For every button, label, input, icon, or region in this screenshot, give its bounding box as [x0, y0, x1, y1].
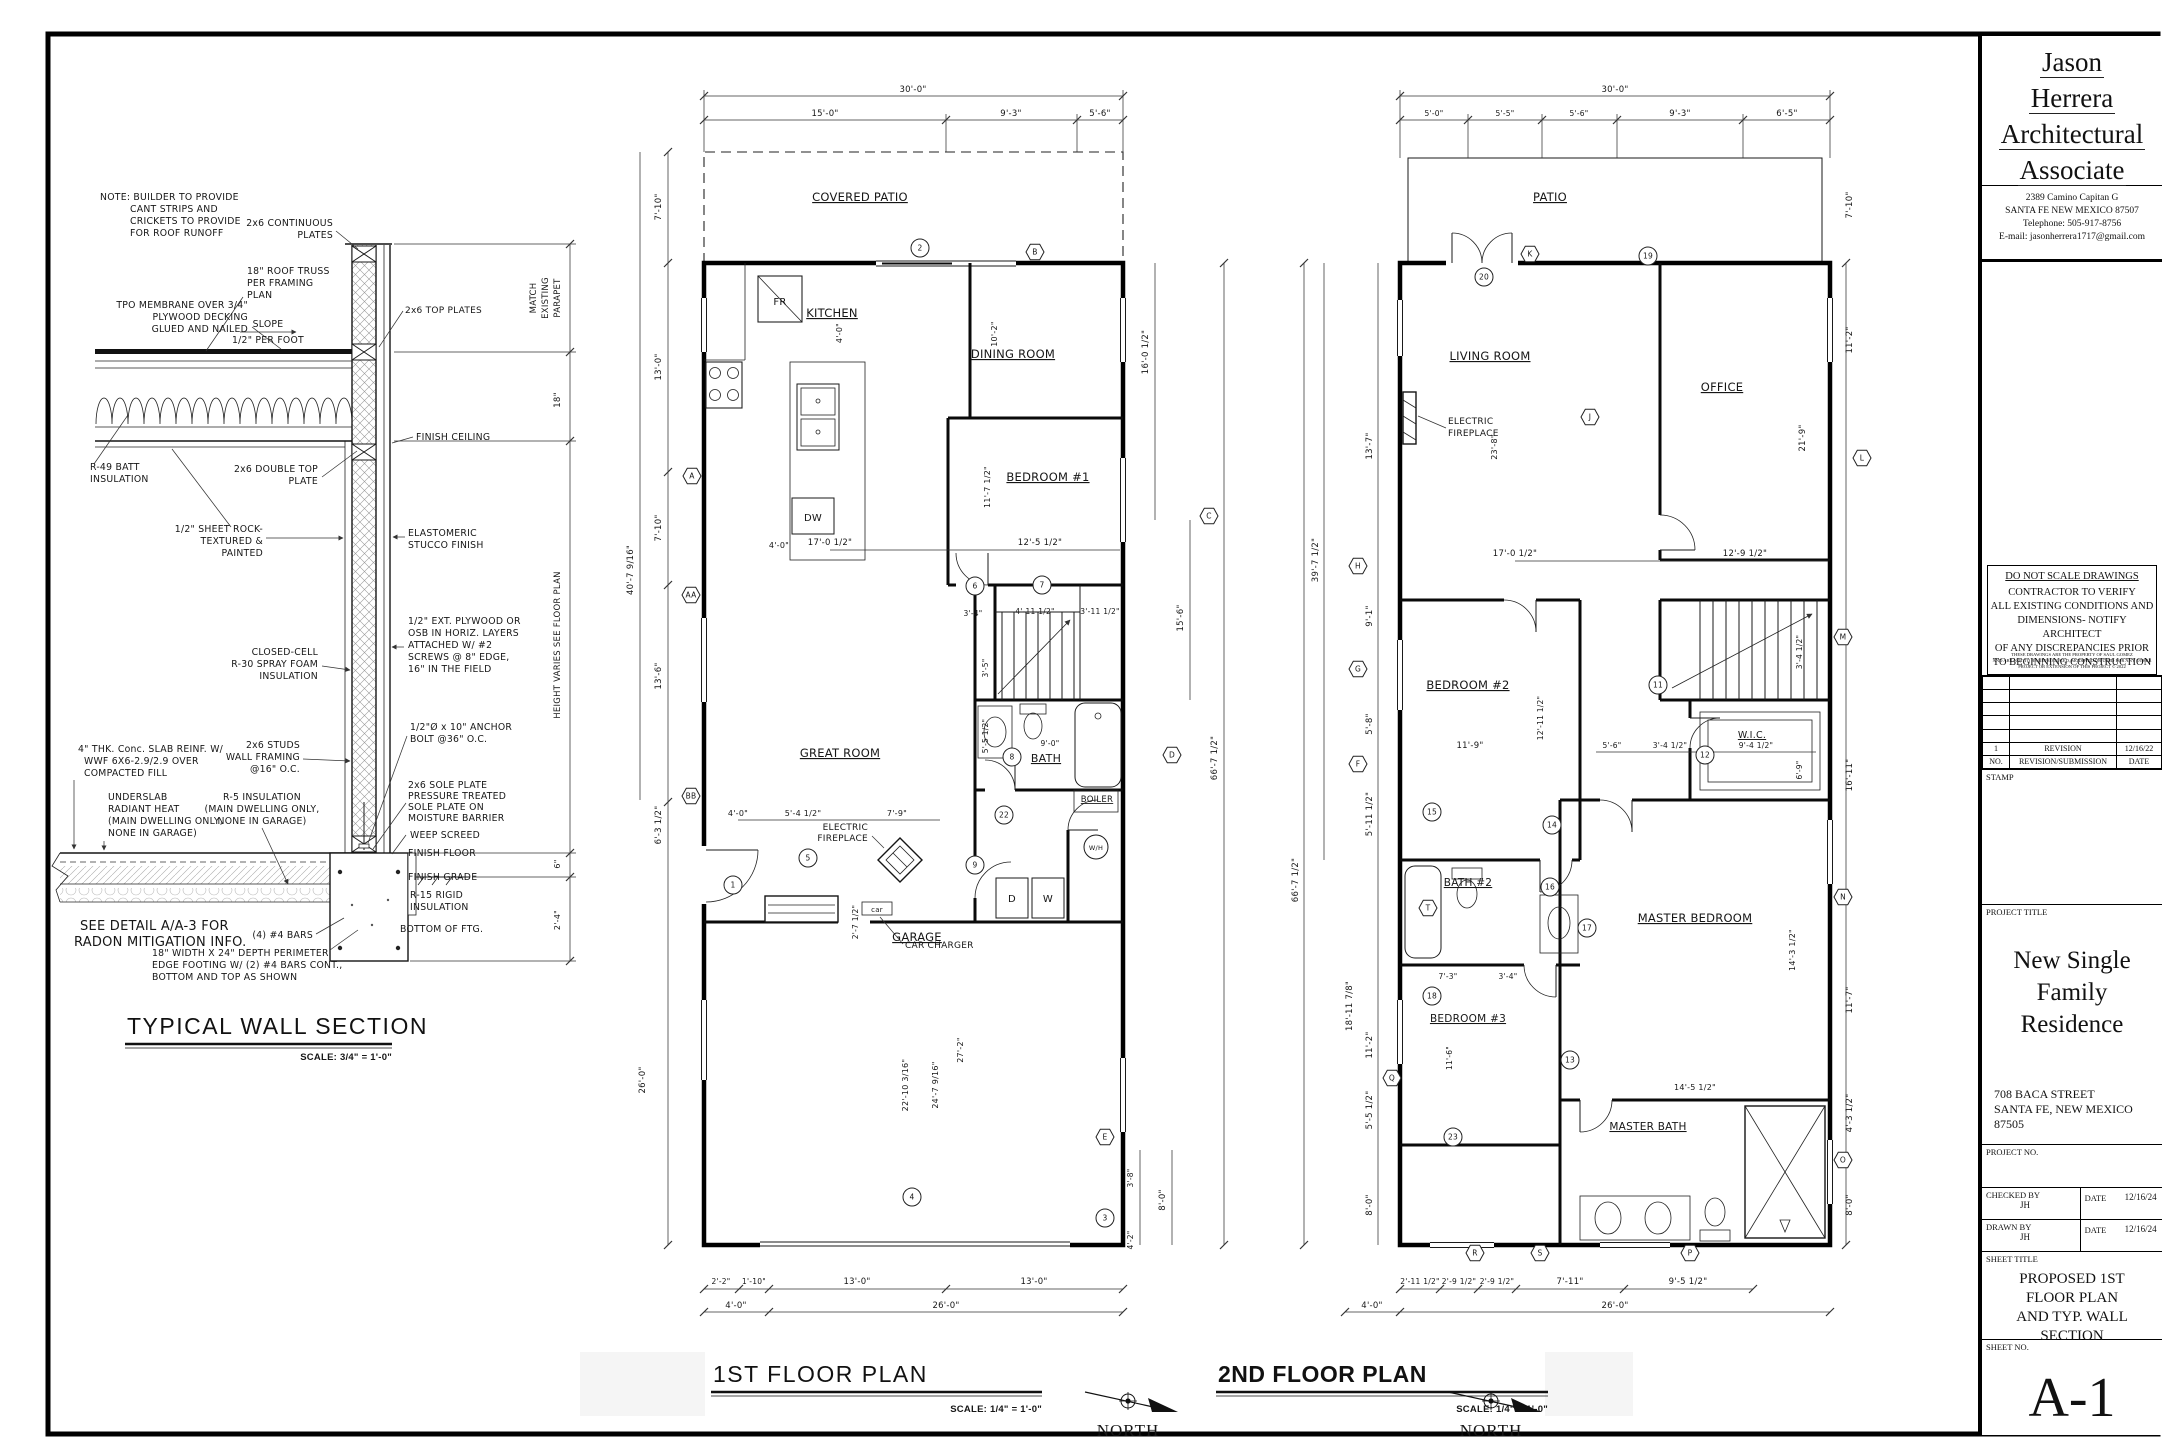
room-label-bath: BATH [1031, 752, 1061, 765]
dim-label: 3'-4" [963, 609, 982, 618]
dim-label: 4'-0" [835, 323, 844, 343]
svg-text:C: C [1206, 512, 1212, 521]
dim-label: 14'-3 1/2" [1788, 929, 1797, 971]
second-floor-plan: PATIOLIVING ROOMOFFICEBEDROOM #2W.I.C.BA… [1216, 85, 1871, 1440]
fixture-label-washer: W [1043, 894, 1053, 905]
plan-marker-7: 7 [1033, 576, 1051, 594]
dim-label: 9'-0" [1040, 739, 1059, 748]
dim-label: PLYWOOD DECKING [153, 312, 248, 323]
plan-marker-9: 9 [966, 856, 984, 874]
dim-label: 5'-8" [1365, 713, 1375, 734]
dim-label: 26'-0" [638, 1066, 648, 1093]
plan-marker-12: 12 [1696, 746, 1714, 764]
plan-marker-C: C [1200, 508, 1218, 524]
dim-label: 30'-0" [899, 85, 926, 95]
dim-label: 16'-11" [1845, 759, 1855, 792]
dim-label: 21'-9" [1798, 424, 1808, 451]
dim-label: 16" IN THE FIELD [408, 664, 492, 675]
wall-section-drawing: NOTE: BUILDER TO PROVIDECANT STRIPS ANDC… [52, 192, 576, 1063]
dim-label: 4'-0" [725, 1301, 746, 1311]
plan-marker-23: 23 [1444, 1128, 1462, 1146]
plan-marker-BB: BB [682, 788, 700, 804]
first-floor-scale: SCALE: 1/4" = 1'-0" [950, 1404, 1042, 1415]
dim-label: 22'-10 3/16" [901, 1059, 910, 1112]
fixture-label-fridge: FR [773, 297, 786, 308]
dim-label: TEXTURED & [200, 536, 263, 547]
dim-label: (MAIN DWELLING ONLY, [108, 816, 223, 827]
dim-label: 1/2" EXT. PLYWOOD OR [408, 616, 521, 627]
checked-by-label: CHECKED BY [1982, 1188, 2080, 1200]
dim-label: 5'-11 1/2" [1365, 792, 1375, 836]
plan-marker-H: H [1349, 558, 1367, 574]
dim-label: 18" WIDTH X 24" DEPTH PERIMETER [152, 948, 329, 959]
dim-label: EXISTING [541, 277, 551, 319]
plan-marker-17: 17 [1578, 919, 1596, 937]
title-block: Jason Herrera Architectural Associate 23… [1978, 36, 2162, 1435]
dim-label: FINISH CEILING [416, 432, 490, 443]
room-label-covered-patio: COVERED PATIO [812, 190, 908, 204]
dim-label: 8'-0" [1158, 1189, 1168, 1210]
svg-text:14: 14 [1547, 821, 1557, 830]
project-address: 708 BACA STREET SANTA FE, NEW MEXICO 875… [1982, 1041, 2162, 1132]
dim-label: 11'-7 1/2" [983, 466, 992, 508]
dim-label: PAINTED [221, 548, 263, 559]
dim-label: 2x6 TOP PLATES [405, 306, 482, 316]
dim-label: 4'-2" [1126, 1230, 1135, 1249]
svg-text:AA: AA [686, 591, 698, 600]
dim-label: SLOPE [253, 319, 284, 330]
dim-label: 3'-8" [1126, 1168, 1135, 1187]
dim-label: 26'-0" [932, 1301, 959, 1311]
project-no-section: PROJECT NO. [1982, 1145, 2162, 1188]
dim-label: 18" ROOF TRUSS [247, 266, 330, 277]
dim-label: 16'-0 1/2" [1141, 330, 1151, 374]
north-label-2: NORTH [1460, 1421, 1523, 1440]
drawn-by-label: DRAWN BY [1982, 1220, 2080, 1232]
dim-label: 4'-11 1/2" [1015, 607, 1055, 616]
first-floor-plan: COVERED PATIOKITCHENDINING ROOMBEDROOM #… [580, 85, 1228, 1440]
dim-label: 23'-8" [1490, 434, 1499, 460]
stamp-section: STAMP [1982, 770, 2162, 905]
svg-text:18: 18 [1427, 992, 1437, 1001]
dim-label: 5'-6" [1089, 109, 1110, 119]
svg-text:P: P [1688, 1249, 1693, 1258]
dim-label: 66'-7 1/2" [1291, 858, 1301, 902]
dim-label: FOR ROOF RUNOFF [130, 228, 223, 239]
fixture-label-water-heater: W/H [1089, 844, 1103, 852]
dim-label: COMPACTED FILL [84, 768, 168, 779]
dim-label: 17'-0 1/2" [808, 538, 852, 548]
dim-label: 40'-7 9/16" [626, 545, 636, 595]
stamp-label: STAMP [1982, 770, 2162, 782]
dim-label: 12'-11 1/2" [1536, 696, 1545, 741]
dim-label: 8'-0" [1365, 1194, 1375, 1215]
dim-label: 14'-5 1/2" [1674, 1083, 1716, 1092]
dim-label: 13'-7" [1365, 432, 1375, 459]
svg-text:R: R [1472, 1249, 1477, 1258]
plan-marker-14: 14 [1543, 816, 1561, 834]
svg-text:K: K [1527, 250, 1533, 259]
dim-label: (4) #4 BARS [252, 930, 313, 941]
dim-label: 13'-0" [1020, 1277, 1047, 1287]
svg-text:3: 3 [1102, 1214, 1107, 1223]
sheet-number: A-1 [1982, 1352, 2162, 1430]
dim-label: 66'-7 1/2" [1210, 736, 1220, 780]
plan-marker-6: 6 [966, 577, 984, 595]
svg-text:A: A [689, 472, 695, 481]
dim-label: 7'-10" [1845, 191, 1855, 218]
dim-label: 7'-10" [654, 514, 664, 541]
dim-label: FINISH GRADE [408, 872, 477, 883]
dim-label: INSULATION [259, 671, 318, 682]
dim-label: NOTE: BUILDER TO PROVIDE [100, 192, 239, 203]
svg-text:L: L [1860, 454, 1865, 463]
svg-text:D: D [1169, 751, 1175, 760]
dim-label: 3'-4" [1498, 972, 1517, 981]
dim-label: 10'-2" [990, 321, 999, 347]
dim-label: 11'-9" [1456, 741, 1483, 751]
svg-text:B: B [1032, 248, 1037, 257]
dim-label: 13'-0" [654, 353, 664, 380]
dim-label: 1/2" SHEET ROCK- [175, 524, 263, 535]
dim-label: SCREWS @ 8" EDGE, [408, 652, 510, 663]
dim-label: 9'-3" [1000, 109, 1021, 119]
dim-label: FINISH FLOOR [408, 848, 476, 859]
svg-text:20: 20 [1479, 273, 1489, 282]
dim-label: WALL FRAMING [226, 752, 300, 763]
svg-text:N: N [1840, 893, 1846, 902]
room-label-great-room: GREAT ROOM [800, 746, 880, 760]
dim-label: 2'-11 1/2" [1400, 1277, 1440, 1286]
svg-text:O: O [1840, 1156, 1846, 1165]
svg-text:12: 12 [1700, 751, 1710, 760]
room-label-bath2: BATH #2 [1444, 877, 1492, 889]
dim-label: 15'-6" [1176, 604, 1186, 631]
dim-label: PRESSURE TREATED [408, 791, 506, 802]
firm-name-line: Architectural [1999, 119, 2145, 150]
dim-label: 5'-5 1/2" [1365, 1091, 1375, 1130]
plan-marker-20: 20 [1475, 268, 1493, 286]
dim-label: 17'-0 1/2" [1493, 549, 1537, 559]
room-label-wic: W.I.C. [1738, 730, 1766, 741]
plan-marker-D: D [1163, 747, 1181, 763]
sheet-no-label: SHEET NO. [1982, 1340, 2162, 1352]
project-no-label: PROJECT NO. [1982, 1145, 2162, 1157]
dim-label: 12'-5 1/2" [1018, 538, 1062, 548]
dim-label: NONE IN GARAGE) [108, 828, 197, 839]
dim-label: BOLT @36" O.C. [410, 734, 487, 745]
dim-label: 7'-10" [654, 193, 664, 220]
dim-label: CANT STRIPS AND [130, 204, 218, 215]
annotation-car-charger: CAR CHARGER [905, 941, 974, 951]
svg-text:6: 6 [972, 582, 977, 591]
svg-text:16: 16 [1545, 883, 1555, 892]
svg-text:7: 7 [1039, 581, 1044, 590]
room-label-master-bath: MASTER BATH [1609, 1121, 1686, 1133]
dim-label: CLOSED-CELL [252, 647, 319, 658]
fixture-label-dishwasher: DW [804, 513, 822, 524]
room-label-bedroom1: BEDROOM #1 [1006, 470, 1089, 484]
svg-text:23: 23 [1448, 1133, 1458, 1142]
plan-marker-22: 22 [995, 806, 1013, 824]
svg-text:F: F [1356, 760, 1361, 769]
dim-label: GLUED AND NAILED [152, 324, 248, 335]
svg-text:13: 13 [1565, 1056, 1575, 1065]
drawn-date-value: 12/16/24 [2125, 1224, 2157, 1234]
wall-section-labels: NOTE: BUILDER TO PROVIDECANT STRIPS ANDC… [74, 192, 563, 983]
dim-label: 6'-5" [1776, 109, 1797, 119]
drawn-by-value: JH [2020, 1232, 2030, 1242]
plan-marker-N: N [1834, 889, 1852, 905]
firm-name: Jason Herrera Architectural Associate [1982, 36, 2162, 186]
revision-row: 1 REVISION 12/16/22 [1983, 742, 2162, 755]
dim-label: PARAPET [553, 278, 563, 318]
room-label-patio: PATIO [1533, 190, 1567, 204]
dim-label: 27'-2" [956, 1037, 965, 1063]
dim-label: 1'-10" [742, 1277, 766, 1286]
firm-address-line: 2389 Camino Capitan G [1982, 192, 2162, 205]
dim-label: RADIANT HEAT [108, 804, 180, 815]
plan-marker-O: O [1834, 1152, 1852, 1168]
fixture-label-car: car [871, 906, 883, 914]
dim-label: SEE DETAIL A/A-3 FOR [80, 919, 229, 934]
room-label-bedroom2: BEDROOM #2 [1426, 678, 1509, 692]
plan-marker-E: E [1096, 1129, 1114, 1145]
notice-heading: DO NOT SCALE DRAWINGS [1989, 570, 2155, 584]
firm-address-line: Telephone: 505-917-8756 [1982, 218, 2162, 231]
drawn-by-row: DRAWN BYJH DATE12/16/24 [1982, 1220, 2162, 1252]
dim-label: 12'-9 1/2" [1723, 549, 1767, 559]
firm-address-line: SANTA FE NEW MEXICO 87507 [1982, 205, 2162, 218]
project-title-section: PROJECT TITLE New Single Family Residenc… [1982, 905, 2162, 1145]
room-label-kitchen: KITCHEN [806, 306, 858, 320]
dim-label: 15'-0" [811, 109, 838, 119]
plan-marker-S: S [1531, 1245, 1549, 1261]
svg-text:Q: Q [1389, 1074, 1395, 1083]
plan-marker-M: M [1834, 629, 1852, 645]
dim-label: 9'-1" [1365, 605, 1375, 626]
plan-marker-13: 13 [1561, 1051, 1579, 1069]
dim-label: 7'-3" [1438, 972, 1457, 981]
dim-label: 5'-0" [1424, 109, 1443, 118]
dim-label: 2'-2" [711, 1277, 730, 1286]
room-label-living: LIVING ROOM [1450, 349, 1531, 363]
svg-text:G: G [1355, 665, 1361, 674]
disclaimer-section: DO NOT SCALE DRAWINGS CONTRACTOR TO VERI… [1982, 265, 2162, 676]
dim-label: 4'-3 1/2" [1845, 1094, 1855, 1133]
dim-label: 30'-0" [1601, 85, 1628, 95]
svg-text:22: 22 [999, 811, 1009, 820]
svg-text:4: 4 [909, 1193, 914, 1202]
plan-marker-J: J [1581, 409, 1599, 425]
dim-label: 5'-5 1/2" [981, 719, 990, 753]
dim-label: CRICKETS TO PROVIDE [130, 216, 241, 227]
dim-label: 26'-0" [1601, 1301, 1628, 1311]
firm-address-line: E-mail: jasonherrera1717@gmail.com [1982, 231, 2162, 244]
plan-marker-AA: AA [682, 587, 700, 603]
north-label-1: NORTH [1097, 1421, 1160, 1440]
svg-text:8: 8 [1009, 753, 1014, 762]
dim-label: 13'-6" [654, 662, 664, 689]
dim-label: R-15 RIGID [410, 890, 463, 901]
dim-label: 9'-3" [1669, 109, 1690, 119]
annotation-electric-fireplace: FIREPLACE [817, 834, 868, 844]
svg-text:15: 15 [1427, 808, 1437, 817]
firm-address: 2389 Camino Capitan G SANTA FE NEW MEXIC… [1982, 186, 2162, 262]
dim-label: 5'-5" [1495, 109, 1514, 118]
dim-label: 24'-7 9/16" [931, 1061, 940, 1108]
dim-label: 2'-9 1/2" [1442, 1277, 1476, 1286]
dim-label: 4'-0" [728, 809, 748, 818]
dim-label: 2'-9 1/2" [1480, 1277, 1514, 1286]
dim-label: HEIGHT VARIES SEE FLOOR PLAN [553, 571, 563, 719]
dim-label: 13'-0" [843, 1277, 870, 1287]
firm-name-line: Herrera [2029, 83, 2115, 114]
dim-label: 6'-3 1/2" [654, 806, 664, 845]
plan-marker-G: G [1349, 661, 1367, 677]
plan-marker-F: F [1349, 756, 1367, 772]
dim-label: 4" THK. Conc. SLAB REINF. W/ [78, 744, 224, 755]
plan-marker-11: 11 [1649, 676, 1667, 694]
dim-label: MOISTURE BARRIER [408, 813, 505, 824]
svg-text:T: T [1425, 904, 1431, 913]
checked-date-value: 12/16/24 [2125, 1192, 2157, 1202]
svg-text:S: S [1537, 1249, 1542, 1258]
dim-label: 5'-4 1/2" [785, 809, 822, 818]
plan-marker-Q: Q [1383, 1070, 1401, 1086]
first-floor-title: 1ST FLOOR PLAN [713, 1361, 928, 1387]
plan-marker-P: P [1681, 1245, 1699, 1261]
sheet-title-label: SHEET TITLE [1982, 1252, 2162, 1264]
dim-label: 18'-11 7/8" [1345, 981, 1355, 1031]
plan-marker-19: 19 [1639, 247, 1657, 265]
svg-text:H: H [1355, 562, 1361, 571]
dim-label: 11'-7" [1845, 986, 1855, 1013]
dim-label: TPO MEMBRANE OVER 3/4" [115, 300, 248, 311]
dim-label: 2'-7 1/2" [851, 905, 860, 939]
dim-label: 5'-6" [1602, 741, 1621, 750]
copyright-note: THESE DRAWINGS ARE THE PROPERTY OF SAUL … [1984, 652, 2160, 670]
annotation-electric-fireplace: ELECTRIC [1448, 417, 1493, 427]
plan-marker-T: T [1419, 900, 1437, 916]
plan-marker-B: B [1026, 244, 1044, 260]
dim-label: WWF 6X6-2.9/2.9 OVER [84, 756, 199, 767]
dim-label: 3'-11 1/2" [1080, 607, 1120, 616]
entry-closet [765, 896, 838, 922]
dim-label: @16" O.C. [250, 764, 300, 775]
dim-label: STUCCO FINISH [408, 540, 484, 551]
dim-label: ELASTOMERIC [408, 528, 477, 539]
checked-by-value: JH [2020, 1200, 2030, 1210]
room-label-boiler: BOILER [1081, 795, 1113, 805]
dim-label: BOTTOM AND TOP AS SHOWN [152, 972, 297, 983]
fixture-label-dryer: D [1008, 894, 1016, 905]
svg-text:M: M [1840, 633, 1847, 642]
dim-label: R-49 BATT [90, 462, 140, 473]
dim-label: INSULATION [90, 474, 149, 485]
dim-label: PLATE [289, 476, 318, 487]
dim-label: 11'-6" [1445, 1046, 1454, 1070]
svg-text:BB: BB [686, 792, 697, 801]
revision-header: NO. REVISION/SUBMISSION DATE [1983, 755, 2162, 768]
annotation-electric-fireplace: ELECTRIC [823, 823, 868, 833]
project-title-label: PROJECT TITLE [1982, 905, 2162, 917]
dim-label: UNDERSLAB [108, 792, 168, 803]
dim-label: (MAIN DWELLING ONLY, [205, 804, 320, 815]
dim-label: NONE IN GARAGE) [217, 816, 306, 827]
firm-name-line: Jason [2040, 47, 2104, 78]
dim-label: 11'-2" [1365, 1031, 1375, 1058]
dim-label: 6'-9" [1795, 760, 1804, 779]
wall-section-scale: SCALE: 3/4" = 1'-0" [300, 1052, 392, 1063]
checked-date-label: DATE [2081, 1191, 2107, 1203]
dim-label: 9'-5 1/2" [1669, 1277, 1708, 1287]
plan-marker-3: 3 [1096, 1209, 1114, 1227]
dim-label: 1/2"Ø x 10" ANCHOR [410, 722, 512, 733]
sheet-no-section: SHEET NO. A-1 [1982, 1340, 2162, 1435]
dim-label: 3'-5" [981, 658, 990, 677]
svg-text:5: 5 [805, 854, 810, 863]
dim-label: 3'-4 1/2" [1653, 741, 1687, 750]
dim-label: BOTTOM OF FTG. [400, 924, 483, 935]
dim-label: 4'-0" [769, 541, 789, 550]
wall-section-title: TYPICAL WALL SECTION [127, 1013, 428, 1039]
svg-text:E: E [1103, 1133, 1108, 1142]
checked-by-row: CHECKED BYJH DATE12/16/24 [1982, 1188, 2162, 1220]
plan-marker-2: 2 [911, 239, 929, 257]
dim-label: INSULATION [410, 902, 469, 913]
dim-label: 5'-6" [1569, 109, 1588, 118]
dim-label: 11'-2" [1845, 326, 1855, 353]
svg-text:11: 11 [1653, 681, 1663, 690]
firm-name-line: Associate [2018, 155, 2127, 186]
room-label-dining: DINING ROOM [971, 347, 1055, 361]
svg-text:2: 2 [917, 244, 922, 253]
dim-label: EDGE FOOTING W/ (2) #4 BARS CONT., [152, 960, 342, 971]
dim-label: 4'-0" [1361, 1301, 1382, 1311]
plan-marker-15: 15 [1423, 803, 1441, 821]
plan-marker-1: 1 [724, 876, 742, 894]
dim-label: R-30 SPRAY FOAM [231, 659, 318, 670]
dim-label: PLAN [247, 290, 272, 301]
dim-label: 2x6 CONTINUOUS [246, 218, 333, 229]
svg-text:19: 19 [1643, 252, 1653, 261]
dim-label: MATCH [529, 283, 539, 314]
dim-label: 8'-0" [1845, 1194, 1855, 1215]
dim-label: PER FRAMING [247, 278, 313, 289]
dim-label: 7'-9" [887, 809, 907, 818]
plan-marker-L: L [1853, 450, 1871, 466]
dim-label: 6" [553, 859, 562, 868]
dim-label: 39'-7 1/2" [1311, 538, 1321, 582]
sheet-title-section: SHEET TITLE PROPOSED 1ST FLOOR PLAN AND … [1982, 1252, 2162, 1340]
dim-label: 1/2" PER FOOT [232, 335, 304, 346]
dim-label: 2x6 SOLE PLATE [408, 780, 487, 791]
plan-marker-R: R [1466, 1245, 1484, 1261]
dim-label: OSB IN HORIZ. LAYERS [408, 628, 519, 639]
dim-label: SOLE PLATE ON [408, 802, 484, 813]
drawing-canvas: NOTE: BUILDER TO PROVIDECANT STRIPS ANDC… [0, 0, 2173, 1448]
revision-table: 1 REVISION 12/16/22 NO. REVISION/SUBMISS… [1982, 676, 2162, 770]
dim-label: 2x6 STUDS [246, 740, 300, 751]
svg-text:17: 17 [1582, 924, 1592, 933]
svg-text:9: 9 [972, 861, 977, 870]
plan-marker-8: 8 [1003, 748, 1021, 766]
plan-marker-16: 16 [1541, 878, 1559, 896]
dim-label: 2x6 DOUBLE TOP [234, 464, 318, 475]
sheet-title: PROPOSED 1ST FLOOR PLAN AND TYP. WALL SE… [1982, 1264, 2162, 1346]
dim-label: ATTACHED W/ #2 [408, 640, 492, 651]
